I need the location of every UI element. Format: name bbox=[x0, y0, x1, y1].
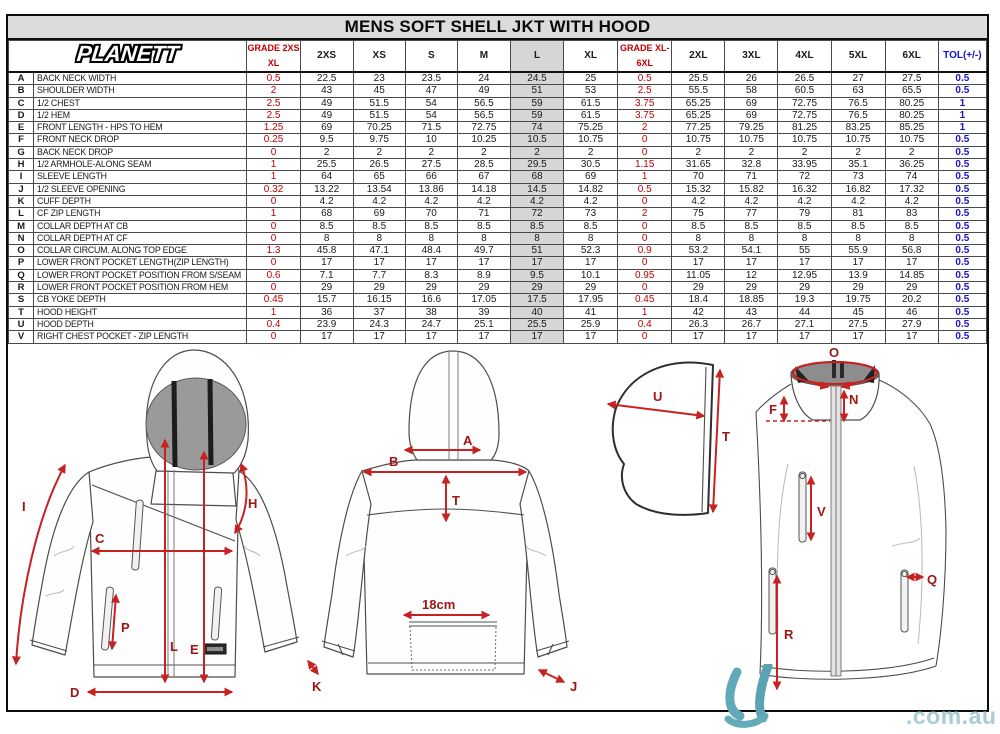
cell-j-xs: 13.54 bbox=[353, 183, 405, 195]
cell-f-5xl: 10.75 bbox=[831, 134, 885, 146]
cell-v-6xl: 17 bbox=[885, 331, 938, 343]
cell-d-tol: 1 bbox=[938, 109, 986, 121]
cell-f-tol: 0.5 bbox=[938, 134, 986, 146]
spec-row-r: RLOWER FRONT POCKET POSITION FROM HEM029… bbox=[9, 282, 987, 294]
cell-t-l: 40 bbox=[510, 306, 563, 318]
cell-f-grade2: 0 bbox=[618, 134, 672, 146]
cell-q-4xl: 12.95 bbox=[778, 269, 831, 281]
cell-i-grade2: 1 bbox=[618, 171, 672, 183]
cell-s-desc: CB YOKE DEPTH bbox=[34, 294, 247, 306]
cell-a-xs: 23 bbox=[353, 72, 405, 85]
cell-h-s: 27.5 bbox=[405, 159, 457, 171]
grade-line2: 6XL bbox=[618, 56, 671, 71]
cell-n-s: 8 bbox=[405, 232, 457, 244]
cell-e-tol: 1 bbox=[938, 122, 986, 134]
cell-c-5xl: 76.5 bbox=[831, 97, 885, 109]
cell-b-2xl: 55.5 bbox=[672, 85, 725, 97]
cell-l-desc: CF ZIP LENGTH bbox=[34, 208, 247, 220]
cell-o-grade2: 0.9 bbox=[618, 245, 672, 257]
cell-b-3xl: 58 bbox=[725, 85, 778, 97]
spec-row-c: C1/2 CHEST2.54951.55456.55961.53.7565.25… bbox=[9, 97, 987, 109]
cell-t-code: T bbox=[9, 306, 34, 318]
spec-row-j: J1/2 SLEEVE OPENING0.3213.2213.5413.8614… bbox=[9, 183, 987, 195]
cell-h-code: H bbox=[9, 159, 34, 171]
cell-u-5xl: 27.5 bbox=[831, 318, 885, 330]
cell-d-4xl: 72.75 bbox=[778, 109, 831, 121]
cell-v-m: 17 bbox=[457, 331, 510, 343]
cell-d-2xl: 65.25 bbox=[672, 109, 725, 121]
garment-diagrams: I C H L E P D K bbox=[8, 344, 987, 702]
size-header-m: M bbox=[457, 41, 510, 73]
cell-o-s: 48.4 bbox=[405, 245, 457, 257]
cell-t-2xs: 36 bbox=[300, 306, 353, 318]
cell-a-desc: BACK NECK WIDTH bbox=[34, 72, 247, 85]
cell-h-5xl: 35.1 bbox=[831, 159, 885, 171]
cell-o-6xl: 56.8 bbox=[885, 245, 938, 257]
dim-label-p: P bbox=[121, 620, 130, 635]
cell-l-5xl: 81 bbox=[831, 208, 885, 220]
dim-label-h: H bbox=[248, 496, 257, 511]
cell-q-xs: 7.7 bbox=[353, 269, 405, 281]
cell-k-code: K bbox=[9, 195, 34, 207]
cell-h-2xl: 31.65 bbox=[672, 159, 725, 171]
cell-l-l: 72 bbox=[510, 208, 563, 220]
dim-label-l: L bbox=[170, 639, 178, 654]
cell-b-tol: 0.5 bbox=[938, 85, 986, 97]
cell-c-grade1: 2.5 bbox=[247, 97, 300, 109]
cell-q-6xl: 14.85 bbox=[885, 269, 938, 281]
brand-cell: PLANETT bbox=[9, 41, 247, 73]
cell-v-5xl: 17 bbox=[831, 331, 885, 343]
spec-row-q: QLOWER FRONT POCKET POSITION FROM S/SEAM… bbox=[9, 269, 987, 281]
cell-p-grade1: 0 bbox=[247, 257, 300, 269]
cell-h-xl: 30.5 bbox=[564, 159, 618, 171]
dim-label-d: D bbox=[70, 685, 79, 700]
cell-u-6xl: 27.9 bbox=[885, 318, 938, 330]
cell-l-code: L bbox=[9, 208, 34, 220]
size-header-3xl: 3XL bbox=[725, 41, 778, 73]
cell-o-4xl: 55 bbox=[778, 245, 831, 257]
cell-s-2xs: 15.7 bbox=[300, 294, 353, 306]
spec-row-k: KCUFF DEPTH04.24.24.24.24.24.204.24.24.2… bbox=[9, 195, 987, 207]
cell-h-l: 29.5 bbox=[510, 159, 563, 171]
cell-l-2xs: 68 bbox=[300, 208, 353, 220]
cell-p-desc: LOWER FRONT POCKET LENGTH(ZIP LENGTH) bbox=[34, 257, 247, 269]
cell-f-xl: 10.75 bbox=[564, 134, 618, 146]
cell-f-4xl: 10.75 bbox=[778, 134, 831, 146]
cell-m-s: 8.5 bbox=[405, 220, 457, 232]
cell-n-3xl: 8 bbox=[725, 232, 778, 244]
cell-k-5xl: 4.2 bbox=[831, 195, 885, 207]
cell-p-4xl: 17 bbox=[778, 257, 831, 269]
cell-e-4xl: 81.25 bbox=[778, 122, 831, 134]
cell-m-xl: 8.5 bbox=[564, 220, 618, 232]
cell-j-5xl: 16.82 bbox=[831, 183, 885, 195]
cell-t-grade1: 1 bbox=[247, 306, 300, 318]
cell-a-3xl: 26 bbox=[725, 72, 778, 85]
cell-v-2xl: 17 bbox=[672, 331, 725, 343]
cell-n-xl: 8 bbox=[564, 232, 618, 244]
cell-n-5xl: 8 bbox=[831, 232, 885, 244]
page-title: MENS SOFT SHELL JKT WITH HOOD bbox=[8, 16, 987, 40]
cell-b-s: 47 bbox=[405, 85, 457, 97]
cell-a-4xl: 26.5 bbox=[778, 72, 831, 85]
cell-e-xs: 70.25 bbox=[353, 122, 405, 134]
cell-f-3xl: 10.75 bbox=[725, 134, 778, 146]
cell-f-xs: 9.75 bbox=[353, 134, 405, 146]
cell-m-tol: 0.5 bbox=[938, 220, 986, 232]
cell-h-4xl: 33.95 bbox=[778, 159, 831, 171]
cell-p-2xl: 17 bbox=[672, 257, 725, 269]
cell-i-tol: 0.5 bbox=[938, 171, 986, 183]
cell-j-4xl: 16.32 bbox=[778, 183, 831, 195]
cell-l-grade2: 2 bbox=[618, 208, 672, 220]
cell-e-grade2: 2 bbox=[618, 122, 672, 134]
cell-d-l: 59 bbox=[510, 109, 563, 121]
front-view: I C H L E P D K bbox=[16, 350, 322, 700]
cell-r-tol: 0.5 bbox=[938, 282, 986, 294]
cell-f-s: 10 bbox=[405, 134, 457, 146]
cell-r-desc: LOWER FRONT POCKET POSITION FROM HEM bbox=[34, 282, 247, 294]
cell-p-2xs: 17 bbox=[300, 257, 353, 269]
spec-row-u: UHOOD DEPTH0.423.924.324.725.125.525.90.… bbox=[9, 318, 987, 330]
cell-d-5xl: 76.5 bbox=[831, 109, 885, 121]
dim-label-u: U bbox=[653, 389, 662, 404]
cell-i-m: 67 bbox=[457, 171, 510, 183]
cell-c-s: 54 bbox=[405, 97, 457, 109]
cell-o-3xl: 54.1 bbox=[725, 245, 778, 257]
watermark-logo bbox=[723, 664, 781, 728]
cell-q-3xl: 12 bbox=[725, 269, 778, 281]
dim-label-f: F bbox=[769, 402, 777, 417]
cell-n-2xl: 8 bbox=[672, 232, 725, 244]
cell-v-tol: 0.5 bbox=[938, 331, 986, 343]
cell-r-grade1: 0 bbox=[247, 282, 300, 294]
cell-m-3xl: 8.5 bbox=[725, 220, 778, 232]
spec-row-o: OCOLLAR CIRCUM. ALONG TOP EDGE1.345.847.… bbox=[9, 245, 987, 257]
spec-row-l: LCF ZIP LENGTH1686970717273275777981830.… bbox=[9, 208, 987, 220]
dim-label-t-back: T bbox=[452, 493, 460, 508]
cell-b-6xl: 65.5 bbox=[885, 85, 938, 97]
cell-g-grade2: 0 bbox=[618, 146, 672, 158]
cell-o-code: O bbox=[9, 245, 34, 257]
grade-header-xl-6xl: GRADE XL-6XL bbox=[618, 41, 672, 73]
dim-label-k: K bbox=[312, 679, 322, 694]
spec-row-h: H1/2 ARMHOLE-ALONG SEAM125.526.527.528.5… bbox=[9, 159, 987, 171]
cell-r-xs: 29 bbox=[353, 282, 405, 294]
cell-k-grade2: 0 bbox=[618, 195, 672, 207]
cell-e-l: 74 bbox=[510, 122, 563, 134]
spec-row-p: PLOWER FRONT POCKET LENGTH(ZIP LENGTH)01… bbox=[9, 257, 987, 269]
cell-l-3xl: 77 bbox=[725, 208, 778, 220]
spec-row-t: THOOD HEIGHT1363738394041142434445460.5 bbox=[9, 306, 987, 318]
collar-detail-view: O F N V R Q bbox=[756, 345, 946, 689]
cell-u-xl: 25.9 bbox=[564, 318, 618, 330]
cell-e-5xl: 83.25 bbox=[831, 122, 885, 134]
cell-s-tol: 0.5 bbox=[938, 294, 986, 306]
cell-m-2xl: 8.5 bbox=[672, 220, 725, 232]
cell-b-code: B bbox=[9, 85, 34, 97]
cell-h-m: 28.5 bbox=[457, 159, 510, 171]
cell-l-2xl: 75 bbox=[672, 208, 725, 220]
cell-r-l: 29 bbox=[510, 282, 563, 294]
cell-u-s: 24.7 bbox=[405, 318, 457, 330]
cell-u-grade1: 0.4 bbox=[247, 318, 300, 330]
cell-t-4xl: 44 bbox=[778, 306, 831, 318]
cell-m-5xl: 8.5 bbox=[831, 220, 885, 232]
cell-o-tol: 0.5 bbox=[938, 245, 986, 257]
cell-o-m: 49.7 bbox=[457, 245, 510, 257]
cell-m-4xl: 8.5 bbox=[778, 220, 831, 232]
cell-a-2xl: 25.5 bbox=[672, 72, 725, 85]
cell-b-xl: 53 bbox=[564, 85, 618, 97]
cell-p-tol: 0.5 bbox=[938, 257, 986, 269]
cell-p-xl: 17 bbox=[564, 257, 618, 269]
cell-e-s: 71.5 bbox=[405, 122, 457, 134]
cell-s-2xl: 18.4 bbox=[672, 294, 725, 306]
cell-r-2xl: 29 bbox=[672, 282, 725, 294]
cell-a-l: 24.5 bbox=[510, 72, 563, 85]
cell-q-s: 8.3 bbox=[405, 269, 457, 281]
cell-u-xs: 24.3 bbox=[353, 318, 405, 330]
cell-p-6xl: 17 bbox=[885, 257, 938, 269]
grade-header-2xs-xl: GRADE 2XS-XL bbox=[247, 41, 300, 73]
cell-d-grade2: 3.75 bbox=[618, 109, 672, 121]
spec-row-i: ISLEEVE LENGTH1646566676869170717273740.… bbox=[9, 171, 987, 183]
cell-t-grade2: 1 bbox=[618, 306, 672, 318]
cell-s-code: S bbox=[9, 294, 34, 306]
cell-u-3xl: 26.7 bbox=[725, 318, 778, 330]
cell-g-xs: 2 bbox=[353, 146, 405, 158]
size-header-l: L bbox=[510, 41, 563, 73]
cell-n-code: N bbox=[9, 232, 34, 244]
cell-i-s: 66 bbox=[405, 171, 457, 183]
cell-n-grade1: 0 bbox=[247, 232, 300, 244]
cell-g-grade1: 0 bbox=[247, 146, 300, 158]
cell-i-5xl: 73 bbox=[831, 171, 885, 183]
cell-h-grade1: 1 bbox=[247, 159, 300, 171]
cell-c-code: C bbox=[9, 97, 34, 109]
cell-f-6xl: 10.75 bbox=[885, 134, 938, 146]
cell-c-l: 59 bbox=[510, 97, 563, 109]
cell-p-grade2: 0 bbox=[618, 257, 672, 269]
cell-m-grade2: 0 bbox=[618, 220, 672, 232]
cell-k-6xl: 4.2 bbox=[885, 195, 938, 207]
cell-c-grade2: 3.75 bbox=[618, 97, 672, 109]
cell-b-2xs: 43 bbox=[300, 85, 353, 97]
cell-d-2xs: 49 bbox=[300, 109, 353, 121]
hood-side-view: U T bbox=[608, 362, 730, 514]
dim-label-e: E bbox=[190, 642, 199, 657]
cell-k-grade1: 0 bbox=[247, 195, 300, 207]
cell-v-2xs: 17 bbox=[300, 331, 353, 343]
size-spec-table: PLANETTGRADE 2XS-XL2XSXSSMLXLGRADE XL-6X… bbox=[8, 40, 987, 344]
cell-d-xl: 61.5 bbox=[564, 109, 618, 121]
cell-r-xl: 29 bbox=[564, 282, 618, 294]
cell-a-m: 24 bbox=[457, 72, 510, 85]
cell-s-6xl: 20.2 bbox=[885, 294, 938, 306]
cell-i-xl: 69 bbox=[564, 171, 618, 183]
cell-c-desc: 1/2 CHEST bbox=[34, 97, 247, 109]
cell-m-xs: 8.5 bbox=[353, 220, 405, 232]
size-header-4xl: 4XL bbox=[778, 41, 831, 73]
cell-j-grade1: 0.32 bbox=[247, 183, 300, 195]
cell-s-s: 16.6 bbox=[405, 294, 457, 306]
spec-row-s: SCB YOKE DEPTH0.4515.716.1516.617.0517.5… bbox=[9, 294, 987, 306]
dim-label-b: B bbox=[389, 454, 398, 469]
cell-i-code: I bbox=[9, 171, 34, 183]
cell-p-3xl: 17 bbox=[725, 257, 778, 269]
dim-label-a: A bbox=[463, 433, 473, 448]
dim-label-q: Q bbox=[927, 572, 937, 587]
cell-h-3xl: 32.8 bbox=[725, 159, 778, 171]
cell-d-code: D bbox=[9, 109, 34, 121]
cell-m-l: 8.5 bbox=[510, 220, 563, 232]
cell-o-desc: COLLAR CIRCUM. ALONG TOP EDGE bbox=[34, 245, 247, 257]
cell-i-xs: 65 bbox=[353, 171, 405, 183]
size-header-6xl: 6XL bbox=[885, 41, 938, 73]
dim-arrow-J bbox=[539, 670, 564, 682]
dim-label-j: J bbox=[570, 679, 577, 694]
cell-s-3xl: 18.85 bbox=[725, 294, 778, 306]
cell-f-2xs: 9.5 bbox=[300, 134, 353, 146]
cell-m-grade1: 0 bbox=[247, 220, 300, 232]
cell-e-xl: 75.25 bbox=[564, 122, 618, 134]
cell-a-5xl: 27 bbox=[831, 72, 885, 85]
cell-o-xs: 47.1 bbox=[353, 245, 405, 257]
cell-c-xs: 51.5 bbox=[353, 97, 405, 109]
cell-g-6xl: 2 bbox=[885, 146, 938, 158]
cell-j-tol: 0.5 bbox=[938, 183, 986, 195]
cell-u-2xs: 23.9 bbox=[300, 318, 353, 330]
cell-a-2xs: 22.5 bbox=[300, 72, 353, 85]
cell-s-xl: 17.95 bbox=[564, 294, 618, 306]
cell-q-grade2: 0.95 bbox=[618, 269, 672, 281]
cell-n-desc: COLLAR DEPTH AT CF bbox=[34, 232, 247, 244]
cell-l-xs: 69 bbox=[353, 208, 405, 220]
cell-s-grade1: 0.45 bbox=[247, 294, 300, 306]
cell-q-xl: 10.1 bbox=[564, 269, 618, 281]
dim-label-r: R bbox=[784, 627, 794, 642]
cell-g-l: 2 bbox=[510, 146, 563, 158]
cell-f-2xl: 10.75 bbox=[672, 134, 725, 146]
cell-c-3xl: 69 bbox=[725, 97, 778, 109]
dim-label-v: V bbox=[817, 504, 826, 519]
cell-p-code: P bbox=[9, 257, 34, 269]
watermark-text: .com.au bbox=[906, 703, 996, 730]
cell-g-3xl: 2 bbox=[725, 146, 778, 158]
cell-j-desc: 1/2 SLEEVE OPENING bbox=[34, 183, 247, 195]
cell-c-m: 56.5 bbox=[457, 97, 510, 109]
cell-a-grade1: 0.5 bbox=[247, 72, 300, 85]
cell-e-2xl: 77.25 bbox=[672, 122, 725, 134]
cell-d-6xl: 80.25 bbox=[885, 109, 938, 121]
cell-e-3xl: 79.25 bbox=[725, 122, 778, 134]
cell-k-xs: 4.2 bbox=[353, 195, 405, 207]
cell-p-5xl: 17 bbox=[831, 257, 885, 269]
cell-q-desc: LOWER FRONT POCKET POSITION FROM S/SEAM bbox=[34, 269, 247, 281]
cell-s-grade2: 0.45 bbox=[618, 294, 672, 306]
grade-line1: GRADE 2XS- bbox=[247, 41, 299, 56]
cell-d-3xl: 69 bbox=[725, 109, 778, 121]
cell-k-desc: CUFF DEPTH bbox=[34, 195, 247, 207]
cell-v-grade1: 0 bbox=[247, 331, 300, 343]
cell-n-grade2: 0 bbox=[618, 232, 672, 244]
cell-l-grade1: 1 bbox=[247, 208, 300, 220]
cell-d-desc: 1/2 HEM bbox=[34, 109, 247, 121]
spec-row-b: BSHOULDER WIDTH24345474951532.555.55860.… bbox=[9, 85, 987, 97]
cell-g-2xs: 2 bbox=[300, 146, 353, 158]
cell-c-2xl: 65.25 bbox=[672, 97, 725, 109]
cell-b-xs: 45 bbox=[353, 85, 405, 97]
cell-u-grade2: 0.4 bbox=[618, 318, 672, 330]
cell-k-2xl: 4.2 bbox=[672, 195, 725, 207]
brand-logo: PLANETT bbox=[76, 48, 179, 59]
cell-m-6xl: 8.5 bbox=[885, 220, 938, 232]
cell-j-code: J bbox=[9, 183, 34, 195]
cell-i-6xl: 74 bbox=[885, 171, 938, 183]
cell-n-m: 8 bbox=[457, 232, 510, 244]
cell-k-l: 4.2 bbox=[510, 195, 563, 207]
cell-g-code: G bbox=[9, 146, 34, 158]
dim-label-i: I bbox=[22, 499, 26, 514]
cell-a-xl: 25 bbox=[564, 72, 618, 85]
cell-m-m: 8.5 bbox=[457, 220, 510, 232]
back-view: A B T 18cm J bbox=[322, 351, 577, 694]
cell-b-grade1: 2 bbox=[247, 85, 300, 97]
cell-h-grade2: 1.15 bbox=[618, 159, 672, 171]
cell-p-xs: 17 bbox=[353, 257, 405, 269]
cell-k-s: 4.2 bbox=[405, 195, 457, 207]
cell-j-m: 14.18 bbox=[457, 183, 510, 195]
tolerance-header: TOL(+/-) bbox=[938, 41, 986, 73]
cell-d-grade1: 2.5 bbox=[247, 109, 300, 121]
cell-r-code: R bbox=[9, 282, 34, 294]
cell-j-2xl: 15.32 bbox=[672, 183, 725, 195]
cell-r-2xs: 29 bbox=[300, 282, 353, 294]
cell-k-xl: 4.2 bbox=[564, 195, 618, 207]
cell-a-6xl: 27.5 bbox=[885, 72, 938, 85]
spec-row-f: FFRONT NECK DROP0.259.59.751010.2510.510… bbox=[9, 134, 987, 146]
cell-u-m: 25.1 bbox=[457, 318, 510, 330]
spec-row-e: EFRONT LENGTH - HPS TO HEM1.256970.2571.… bbox=[9, 122, 987, 134]
size-header-2xs: 2XS bbox=[300, 41, 353, 73]
cell-a-s: 23.5 bbox=[405, 72, 457, 85]
cell-j-l: 14.5 bbox=[510, 183, 563, 195]
cell-g-2xl: 2 bbox=[672, 146, 725, 158]
cell-h-desc: 1/2 ARMHOLE-ALONG SEAM bbox=[34, 159, 247, 171]
cell-v-s: 17 bbox=[405, 331, 457, 343]
cell-u-tol: 0.5 bbox=[938, 318, 986, 330]
cell-v-desc: RIGHT CHEST POCKET - ZIP LENGTH bbox=[34, 331, 247, 343]
cell-t-desc: HOOD HEIGHT bbox=[34, 306, 247, 318]
cell-f-desc: FRONT NECK DROP bbox=[34, 134, 247, 146]
cell-k-2xs: 4.2 bbox=[300, 195, 353, 207]
cell-f-l: 10.5 bbox=[510, 134, 563, 146]
cell-v-xs: 17 bbox=[353, 331, 405, 343]
cell-b-m: 49 bbox=[457, 85, 510, 97]
cell-f-m: 10.25 bbox=[457, 134, 510, 146]
cell-c-2xs: 49 bbox=[300, 97, 353, 109]
cell-e-m: 72.75 bbox=[457, 122, 510, 134]
cell-e-6xl: 85.25 bbox=[885, 122, 938, 134]
cell-v-xl: 17 bbox=[564, 331, 618, 343]
cell-p-s: 17 bbox=[405, 257, 457, 269]
cell-i-grade1: 1 bbox=[247, 171, 300, 183]
cell-i-desc: SLEEVE LENGTH bbox=[34, 171, 247, 183]
cell-l-xl: 73 bbox=[564, 208, 618, 220]
cell-h-2xs: 25.5 bbox=[300, 159, 353, 171]
